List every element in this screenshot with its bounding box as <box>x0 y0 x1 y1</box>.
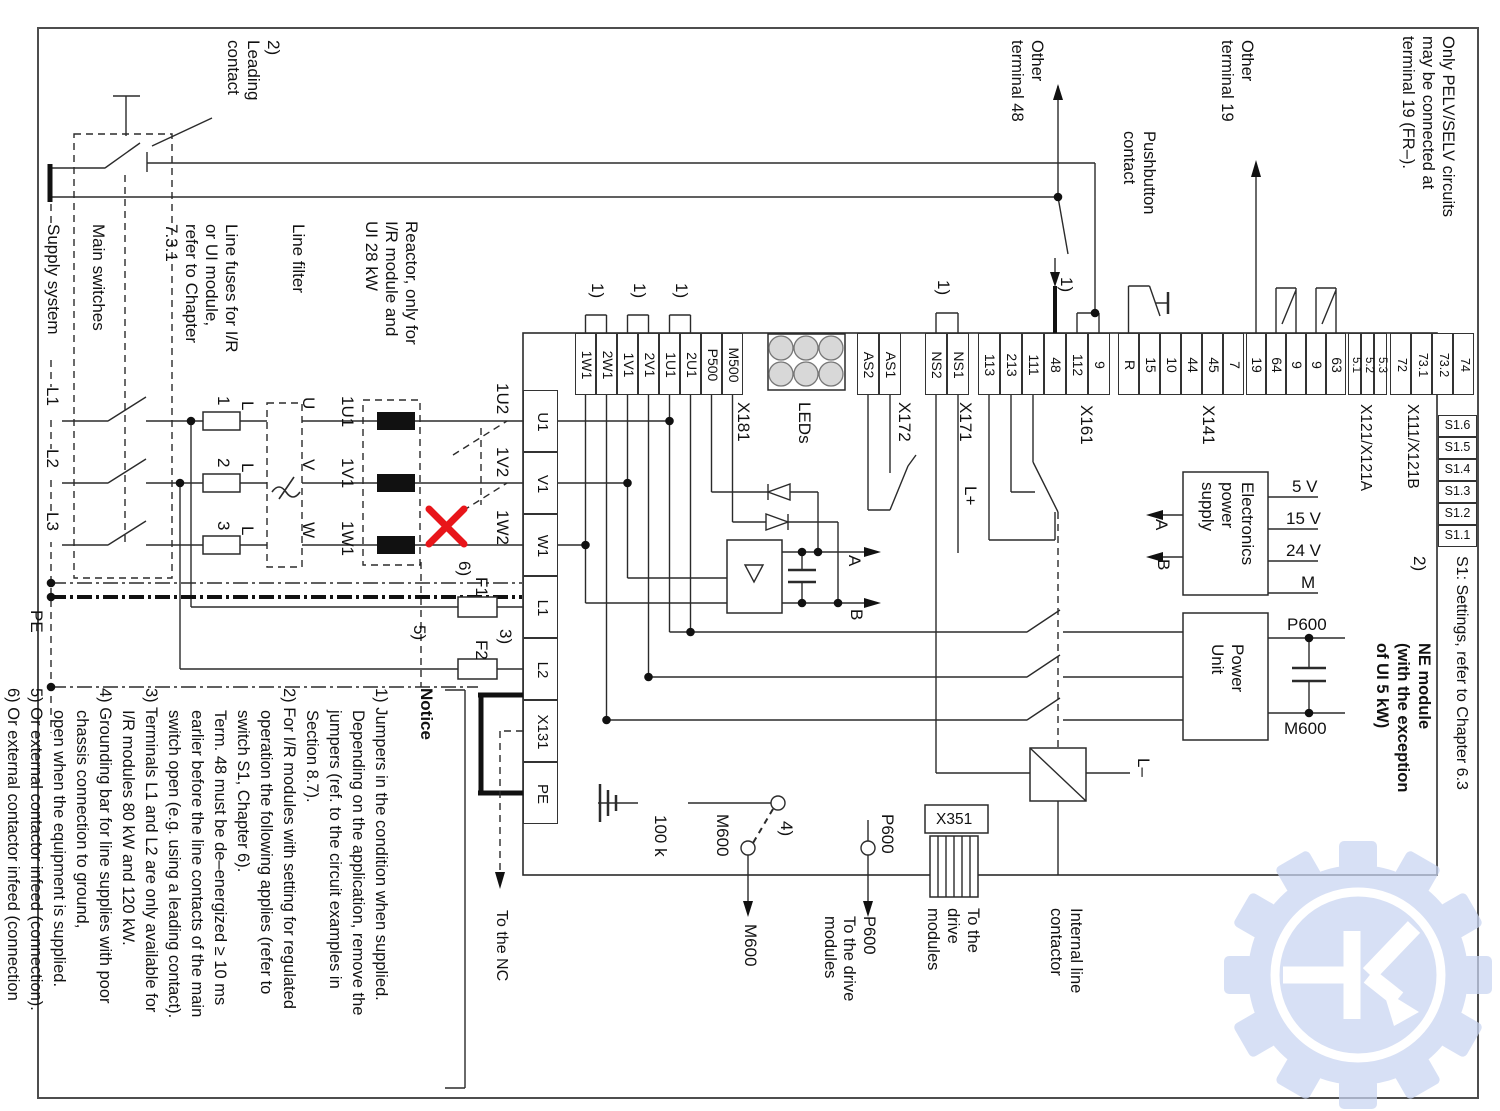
terminal-label: 48 <box>1046 337 1066 393</box>
terminal-5.1: 5.1 <box>1348 333 1361 395</box>
notice-item-3: 3) Terminals L1 and L2 are only availabl… <box>116 688 162 1090</box>
internal-line-contactor: Internal line contactor <box>1046 908 1086 1018</box>
filter-v: V <box>298 459 318 475</box>
volt-24: 24 V <box>1286 541 1321 560</box>
terminal-2V1: 2V1 <box>638 333 659 395</box>
m600-tap: M600 <box>712 814 732 870</box>
terminal-label: 2W1 <box>598 337 618 393</box>
reactor-chokes <box>377 412 415 554</box>
eps-a: A <box>1151 519 1171 539</box>
notice-block: Notice 1) Jumpers in the condition when … <box>21 688 461 1090</box>
ref-4: 4) <box>776 821 796 847</box>
terminal-label: 10 <box>1162 337 1182 393</box>
line-fuses-note: Line fuses for I/R or UI module, refer t… <box>161 224 241 384</box>
terminal-label: 9 <box>1090 337 1110 393</box>
fuse-l1: L <box>237 401 257 417</box>
terminal-label: 73.1 <box>1413 337 1433 393</box>
terminal-X131: X131 <box>523 700 558 762</box>
terminal-5.2: 5.2 <box>1361 333 1374 395</box>
out-1v2: 1V2 <box>492 447 512 487</box>
terminal-label: 15 <box>1141 337 1161 393</box>
terminal-label: 2U1 <box>682 337 702 393</box>
x141: X141 <box>1198 405 1218 463</box>
volt-5: 5 V <box>1292 477 1318 496</box>
power-unit: Power Unit <box>1207 644 1247 718</box>
terminal-label: AS2 <box>859 337 879 393</box>
jumper-1c: 1) <box>671 283 691 309</box>
terminal-label: 1W1 <box>577 337 597 393</box>
terminal-label: 45 <box>1204 337 1224 393</box>
terminal-48: 48 <box>1044 333 1066 395</box>
x171: X171 <box>955 402 975 460</box>
terminal-63: 63 <box>1326 333 1346 395</box>
x121-x121a: X121/X121A <box>1355 404 1375 522</box>
terminal-label: U1 <box>532 394 552 450</box>
terminal-1W1: 1W1 <box>575 333 596 395</box>
terminal-label: 44 <box>1183 337 1203 393</box>
main-switches: Main switches <box>88 224 108 356</box>
terminal-label: PE <box>532 766 552 822</box>
out-1w2: 1W2 <box>492 510 512 550</box>
p600-dclink: P600 <box>1287 615 1327 634</box>
terminal-15: 15 <box>1139 333 1160 395</box>
notice-item-4: 4) Grounding bar for line supplies with … <box>47 688 116 1090</box>
resistor-100k: 100 k <box>650 815 670 873</box>
fuse-1: 1 <box>213 396 233 412</box>
pushbutton-contact: Pushbutton contact <box>1119 131 1159 243</box>
terminal-213: 213 <box>1000 333 1022 395</box>
terminal-label: P500 <box>703 337 723 393</box>
terminal-label: 111 <box>1024 337 1044 393</box>
x351-out: To the drive modules <box>923 908 983 1004</box>
fuse-f1: F1 <box>471 577 491 599</box>
terminal-73.1: 73.1 <box>1411 333 1432 395</box>
ref-2-right: 2) <box>1409 556 1429 582</box>
terminal-label: 7 <box>1225 337 1245 393</box>
dip-switch-S1.1: S1.1 <box>1438 525 1477 547</box>
terminal-73.2: 73.2 <box>1432 333 1453 395</box>
eps-b: B <box>1153 559 1173 579</box>
leading-contact-note: 2) Leading contact <box>223 40 283 122</box>
notice-header: Notice <box>415 688 438 1090</box>
terminal-label: 19 <box>1247 337 1267 393</box>
terminal-44: 44 <box>1181 333 1202 395</box>
terminal-7: 7 <box>1223 333 1244 395</box>
terminal-label: 9 <box>1287 337 1307 393</box>
phase-l1: L1 <box>42 387 62 417</box>
rect-a: A <box>844 555 864 575</box>
terminal-R: R <box>1118 333 1139 395</box>
terminal-label: 74 <box>1455 337 1475 393</box>
x351: X351 <box>936 810 972 829</box>
terminal-label: 112 <box>1068 337 1088 393</box>
supply-system: Supply system <box>43 224 63 356</box>
x161: X161 <box>1076 405 1096 463</box>
ne-module-title: NE module (with the exception of UI 5 kW… <box>1371 643 1434 825</box>
fuse-l2: L <box>237 463 257 479</box>
open-terminals <box>741 796 875 855</box>
terminal-2W1: 2W1 <box>596 333 617 395</box>
reactor-1v1: 1V1 <box>337 458 357 496</box>
terminal-L1: L1 <box>523 576 558 638</box>
terminal-9: 9 <box>1088 333 1110 395</box>
terminal-label: 5.3 <box>1375 337 1388 393</box>
l-plus: L+ <box>960 486 980 520</box>
terminal-L2: L2 <box>523 638 558 700</box>
other-terminal-19: Other terminal 19 <box>1217 40 1257 144</box>
jumper-1-112: 1) <box>1056 277 1076 305</box>
terminal-label: AS1 <box>881 337 901 393</box>
filter-w: W <box>298 522 318 538</box>
x111-x121b: X111/X121B <box>1402 404 1422 522</box>
terminal-M500: M500 <box>722 333 743 395</box>
phase-l2: L2 <box>42 449 62 479</box>
x172: X172 <box>894 402 914 460</box>
terminal-19: 19 <box>1246 333 1266 395</box>
terminal-111: 111 <box>1022 333 1044 395</box>
leds-label: LEDs <box>794 402 814 460</box>
fuse-l3: L <box>237 526 257 542</box>
terminal-label: 2V1 <box>640 337 660 393</box>
terminal-5.3: 5.3 <box>1374 333 1387 395</box>
phase-l3: L3 <box>42 512 62 542</box>
terminal-9: 9 <box>1286 333 1306 395</box>
reactor-1u1: 1U1 <box>337 396 357 434</box>
terminal-U1: U1 <box>523 390 558 452</box>
terminal-72: 72 <box>1390 333 1411 395</box>
line-filter: Line filter <box>288 224 308 324</box>
dip-switch-S1.4: S1.4 <box>1438 459 1477 481</box>
terminal-label: 113 <box>980 337 1000 393</box>
l-minus: L– <box>1133 758 1153 794</box>
filter-symbol <box>272 477 300 499</box>
x181: X181 <box>733 402 753 460</box>
terminal-V1: V1 <box>523 452 558 514</box>
terminal-P500: P500 <box>701 333 722 395</box>
switch-4-blade <box>753 809 773 843</box>
terminal-label: NS1 <box>949 337 969 393</box>
terminal-label: 72 <box>1392 337 1412 393</box>
m600-dclink: M600 <box>1284 719 1327 738</box>
terminal-label: X131 <box>532 704 552 760</box>
jumper-1b: 1) <box>629 283 649 309</box>
terminal-113: 113 <box>978 333 1000 395</box>
notice-item-1: 1) Jumpers in the condition when supplie… <box>300 688 392 1090</box>
terminal-NS1: NS1 <box>947 333 969 395</box>
terminal-label: 213 <box>1002 337 1022 393</box>
terminal-label: M500 <box>724 337 744 393</box>
terminal-AS1: AS1 <box>879 333 901 395</box>
fuse-f2: F2 <box>471 640 491 662</box>
p600-out: P600 To the drive modules <box>820 916 879 1020</box>
terminal-label: V1 <box>532 456 552 512</box>
ne-module-outline <box>523 333 1437 875</box>
terminal-1V1: 1V1 <box>617 333 638 395</box>
terminal-112: 112 <box>1066 333 1088 395</box>
s1-settings-note: S1: Settings, refer to Chapter 6.3 <box>1451 556 1471 856</box>
ref-3: 3) <box>495 629 515 653</box>
dip-switch-S1.3: S1.3 <box>1438 481 1477 503</box>
rect-b: B <box>846 609 866 629</box>
terminal-label: 1U1 <box>661 337 681 393</box>
terminal-9: 9 <box>1306 333 1326 395</box>
fuse-3: 3 <box>213 521 233 537</box>
notice-items: 1) Jumpers in the condition when supplie… <box>0 688 392 1090</box>
terminal-label: 63 <box>1327 337 1347 393</box>
p600-tap: P600 <box>877 814 897 866</box>
notice-item-5: 5) Or external contactor infeed (connect… <box>24 688 47 1090</box>
ref-5: 5) <box>409 625 429 649</box>
terminal-label: 1V1 <box>619 337 639 393</box>
terminal-label: 73.2 <box>1434 337 1454 393</box>
pe-label: PE <box>26 610 46 644</box>
fuse-2: 2 <box>213 458 233 474</box>
terminal-label: L1 <box>532 580 552 636</box>
volt-m: M <box>1301 573 1315 592</box>
to-the-nc: To the NC <box>491 910 511 1010</box>
notice-item-2: 2) For I/R modules with setting for regu… <box>162 688 300 1090</box>
terminal-74: 74 <box>1453 333 1474 395</box>
terminal-PE: PE <box>523 762 558 824</box>
terminal-label: 64 <box>1267 337 1287 393</box>
terminal-W1: W1 <box>523 514 558 576</box>
terminal-NS2: NS2 <box>925 333 947 395</box>
filter-u: U <box>298 397 318 413</box>
jumper-1-ns: 1) <box>933 280 953 306</box>
terminal-label: R <box>1120 337 1140 393</box>
dip-switch-S1.6: S1.6 <box>1438 415 1477 437</box>
schematic-page: Notice 1) Jumpers in the condition when … <box>0 0 1500 1111</box>
terminal-1U1: 1U1 <box>659 333 680 395</box>
reactor-1w1: 1W1 <box>337 521 357 559</box>
m600-out: M600 <box>740 924 760 986</box>
jumper-1a: 1) <box>587 283 607 309</box>
other-terminal-48: Other terminal 48 <box>1007 40 1047 144</box>
dip-switch-S1.2: S1.2 <box>1438 503 1477 525</box>
terminal-2U1: 2U1 <box>680 333 701 395</box>
terminal-label: L2 <box>532 642 552 698</box>
terminal-AS2: AS2 <box>857 333 879 395</box>
terminal-45: 45 <box>1202 333 1223 395</box>
watermark-gear-logo <box>1224 841 1492 1109</box>
terminal-label: 9 <box>1307 337 1327 393</box>
pelv-note: Only PELV/SELV circuits may be connected… <box>1398 36 1458 266</box>
terminal-10: 10 <box>1160 333 1181 395</box>
notice-item-6: 6) Or external contactor infeed (connect… <box>0 688 24 1090</box>
electronics-power-supply: Electronics power supply <box>1197 482 1257 582</box>
dip-switch-S1.5: S1.5 <box>1438 437 1477 459</box>
not-permitted-cross <box>429 509 464 544</box>
volt-15: 15 V <box>1286 509 1321 528</box>
terminal-label: W1 <box>532 518 552 574</box>
terminal-label: NS2 <box>927 337 947 393</box>
out-1u2: 1U2 <box>492 383 512 423</box>
reactor-note: Reactor, only for I/R module and UI 28 k… <box>361 221 421 381</box>
terminal-64: 64 <box>1266 333 1286 395</box>
